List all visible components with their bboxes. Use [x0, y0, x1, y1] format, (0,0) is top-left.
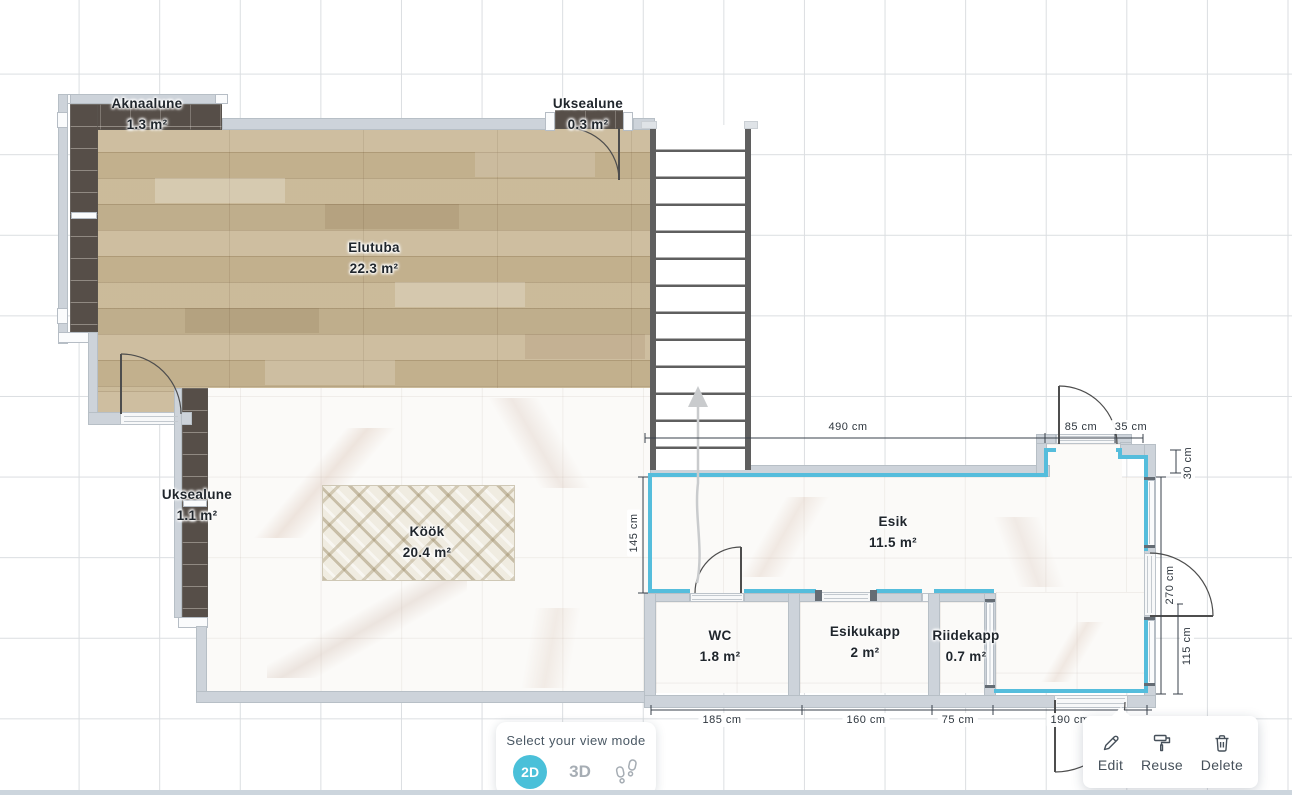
window-right-upper[interactable] — [1144, 480, 1155, 546]
paint-roller-icon — [1151, 732, 1173, 754]
view-mode-panel: Select your view mode 2D 3D — [496, 722, 656, 795]
room-label-kook: Köök 20.4 m² — [403, 521, 452, 563]
dim-esik-left-height: 145 cm — [627, 509, 641, 556]
room-elutuba-floor-lower[interactable] — [95, 391, 183, 413]
door-alcove[interactable] — [1056, 434, 1116, 444]
room-area: 2 m² — [830, 642, 900, 663]
view-mode-walk-button[interactable] — [613, 757, 639, 787]
view-mode-2d-button[interactable]: 2D — [513, 755, 547, 789]
wall-livingroom-bottomleft[interactable] — [88, 412, 122, 425]
wood-plank-shade — [525, 334, 645, 359]
wood-plank-shade — [185, 308, 319, 333]
wall-top-main[interactable] — [222, 118, 547, 130]
delete-button[interactable]: Delete — [1201, 732, 1243, 773]
room-label-riidekapp: Riidekapp 0.7 m² — [932, 625, 999, 667]
room-name: Riidekapp — [932, 625, 999, 646]
delete-label: Delete — [1201, 757, 1243, 773]
room-area: 1.3 m² — [112, 114, 183, 135]
room-area: 20.4 m² — [403, 542, 452, 563]
room-label-uksealune-top: Uksealune 0.3 m² — [553, 93, 623, 135]
wall-cap — [215, 94, 228, 104]
room-name: Aknaalune — [112, 93, 183, 114]
footsteps-icon — [613, 757, 639, 787]
view-mode-3d-button[interactable]: 3D — [569, 762, 591, 782]
door-esikukapp[interactable] — [816, 592, 876, 602]
room-label-elutuba: Elutuba 22.3 m² — [348, 237, 400, 279]
dim-right-offset: 30 cm — [1181, 443, 1195, 483]
wall-joint-mark — [71, 212, 97, 219]
viewport-bottom-edge — [0, 790, 1292, 795]
dim-alcove-door: 85 cm — [1061, 420, 1101, 434]
room-name: Uksealune — [162, 484, 232, 505]
wall-cap — [744, 121, 758, 129]
dim-right-height: 270 cm — [1163, 561, 1177, 608]
edit-button[interactable]: Edit — [1098, 732, 1123, 773]
floorplan-canvas[interactable]: Elutuba 22.3 m² Köök 20.4 m² Esik 11.5 m… — [0, 0, 1292, 795]
alcove-floor[interactable] — [1046, 444, 1122, 478]
room-area: 22.3 m² — [348, 258, 400, 279]
wood-plank-shade — [155, 178, 285, 203]
wood-plank-shade — [265, 360, 395, 385]
wall-alcove-topleft[interactable] — [1036, 434, 1056, 444]
room-name: Elutuba — [348, 237, 400, 258]
wall-alcove-left[interactable] — [1036, 442, 1047, 477]
context-menu: Edit Reuse Delete — [1083, 716, 1258, 788]
room-name: Esik — [869, 511, 917, 532]
dim-alcove-side: 35 cm — [1111, 420, 1151, 434]
wall-wc-left[interactable] — [644, 593, 656, 703]
wall-rooms-top[interactable] — [876, 593, 922, 602]
room-name: Köök — [403, 521, 452, 542]
room-name: Esikukapp — [830, 621, 900, 642]
reuse-label: Reuse — [1141, 757, 1183, 773]
room-name: Uksealune — [553, 93, 623, 114]
window-slot — [57, 308, 68, 324]
wall-rooms-top[interactable] — [744, 593, 816, 602]
wall-wc-right[interactable] — [788, 593, 800, 703]
room-label-uksealune-left: Uksealune 1.1 m² — [162, 484, 232, 526]
door-wc[interactable] — [690, 593, 744, 602]
wood-plank-shade — [325, 204, 459, 229]
room-area: 0.7 m² — [932, 646, 999, 667]
wood-plank-shade — [395, 282, 525, 307]
pencil-icon — [1100, 732, 1122, 754]
room-area: 1.1 m² — [162, 505, 232, 526]
room-label-esikukapp: Esikukapp 2 m² — [830, 621, 900, 663]
room-area: 0.3 m² — [553, 114, 623, 135]
dim-top-width: 490 cm — [824, 420, 871, 434]
window-right-lower[interactable] — [1144, 620, 1155, 684]
wall-kitchen-left[interactable] — [196, 626, 207, 693]
door-right-gap[interactable] — [1144, 553, 1156, 616]
edit-label: Edit — [1098, 757, 1123, 773]
view-mode-title: Select your view mode — [496, 733, 656, 748]
trash-icon — [1211, 732, 1233, 754]
dim-right-lower: 115 cm — [1180, 623, 1194, 669]
reuse-button[interactable]: Reuse — [1141, 732, 1183, 773]
room-area: 11.5 m² — [869, 532, 917, 553]
room-label-aknaalune: Aknaalune 1.3 m² — [112, 93, 183, 135]
window-slot — [57, 112, 68, 128]
room-area: 1.8 m² — [700, 646, 741, 667]
staircase[interactable] — [650, 125, 751, 470]
room-esik-floor-lower[interactable] — [996, 592, 1144, 692]
room-name: WC — [700, 625, 741, 646]
wood-plank-shade — [475, 152, 595, 177]
wall-balcony-left[interactable] — [58, 94, 68, 344]
dim-wc-width: 185 cm — [698, 713, 745, 727]
dim-riidekapp-width: 75 cm — [938, 713, 978, 727]
wall-kitchen-bottom[interactable] — [196, 691, 656, 703]
dim-esikukapp-width: 160 cm — [842, 713, 889, 727]
wall-cap — [641, 121, 657, 129]
room-label-esik: Esik 11.5 m² — [869, 511, 917, 553]
wall-cap — [623, 112, 633, 131]
door-livingroom-left[interactable] — [120, 412, 182, 425]
room-label-wc: WC 1.8 m² — [700, 625, 741, 667]
